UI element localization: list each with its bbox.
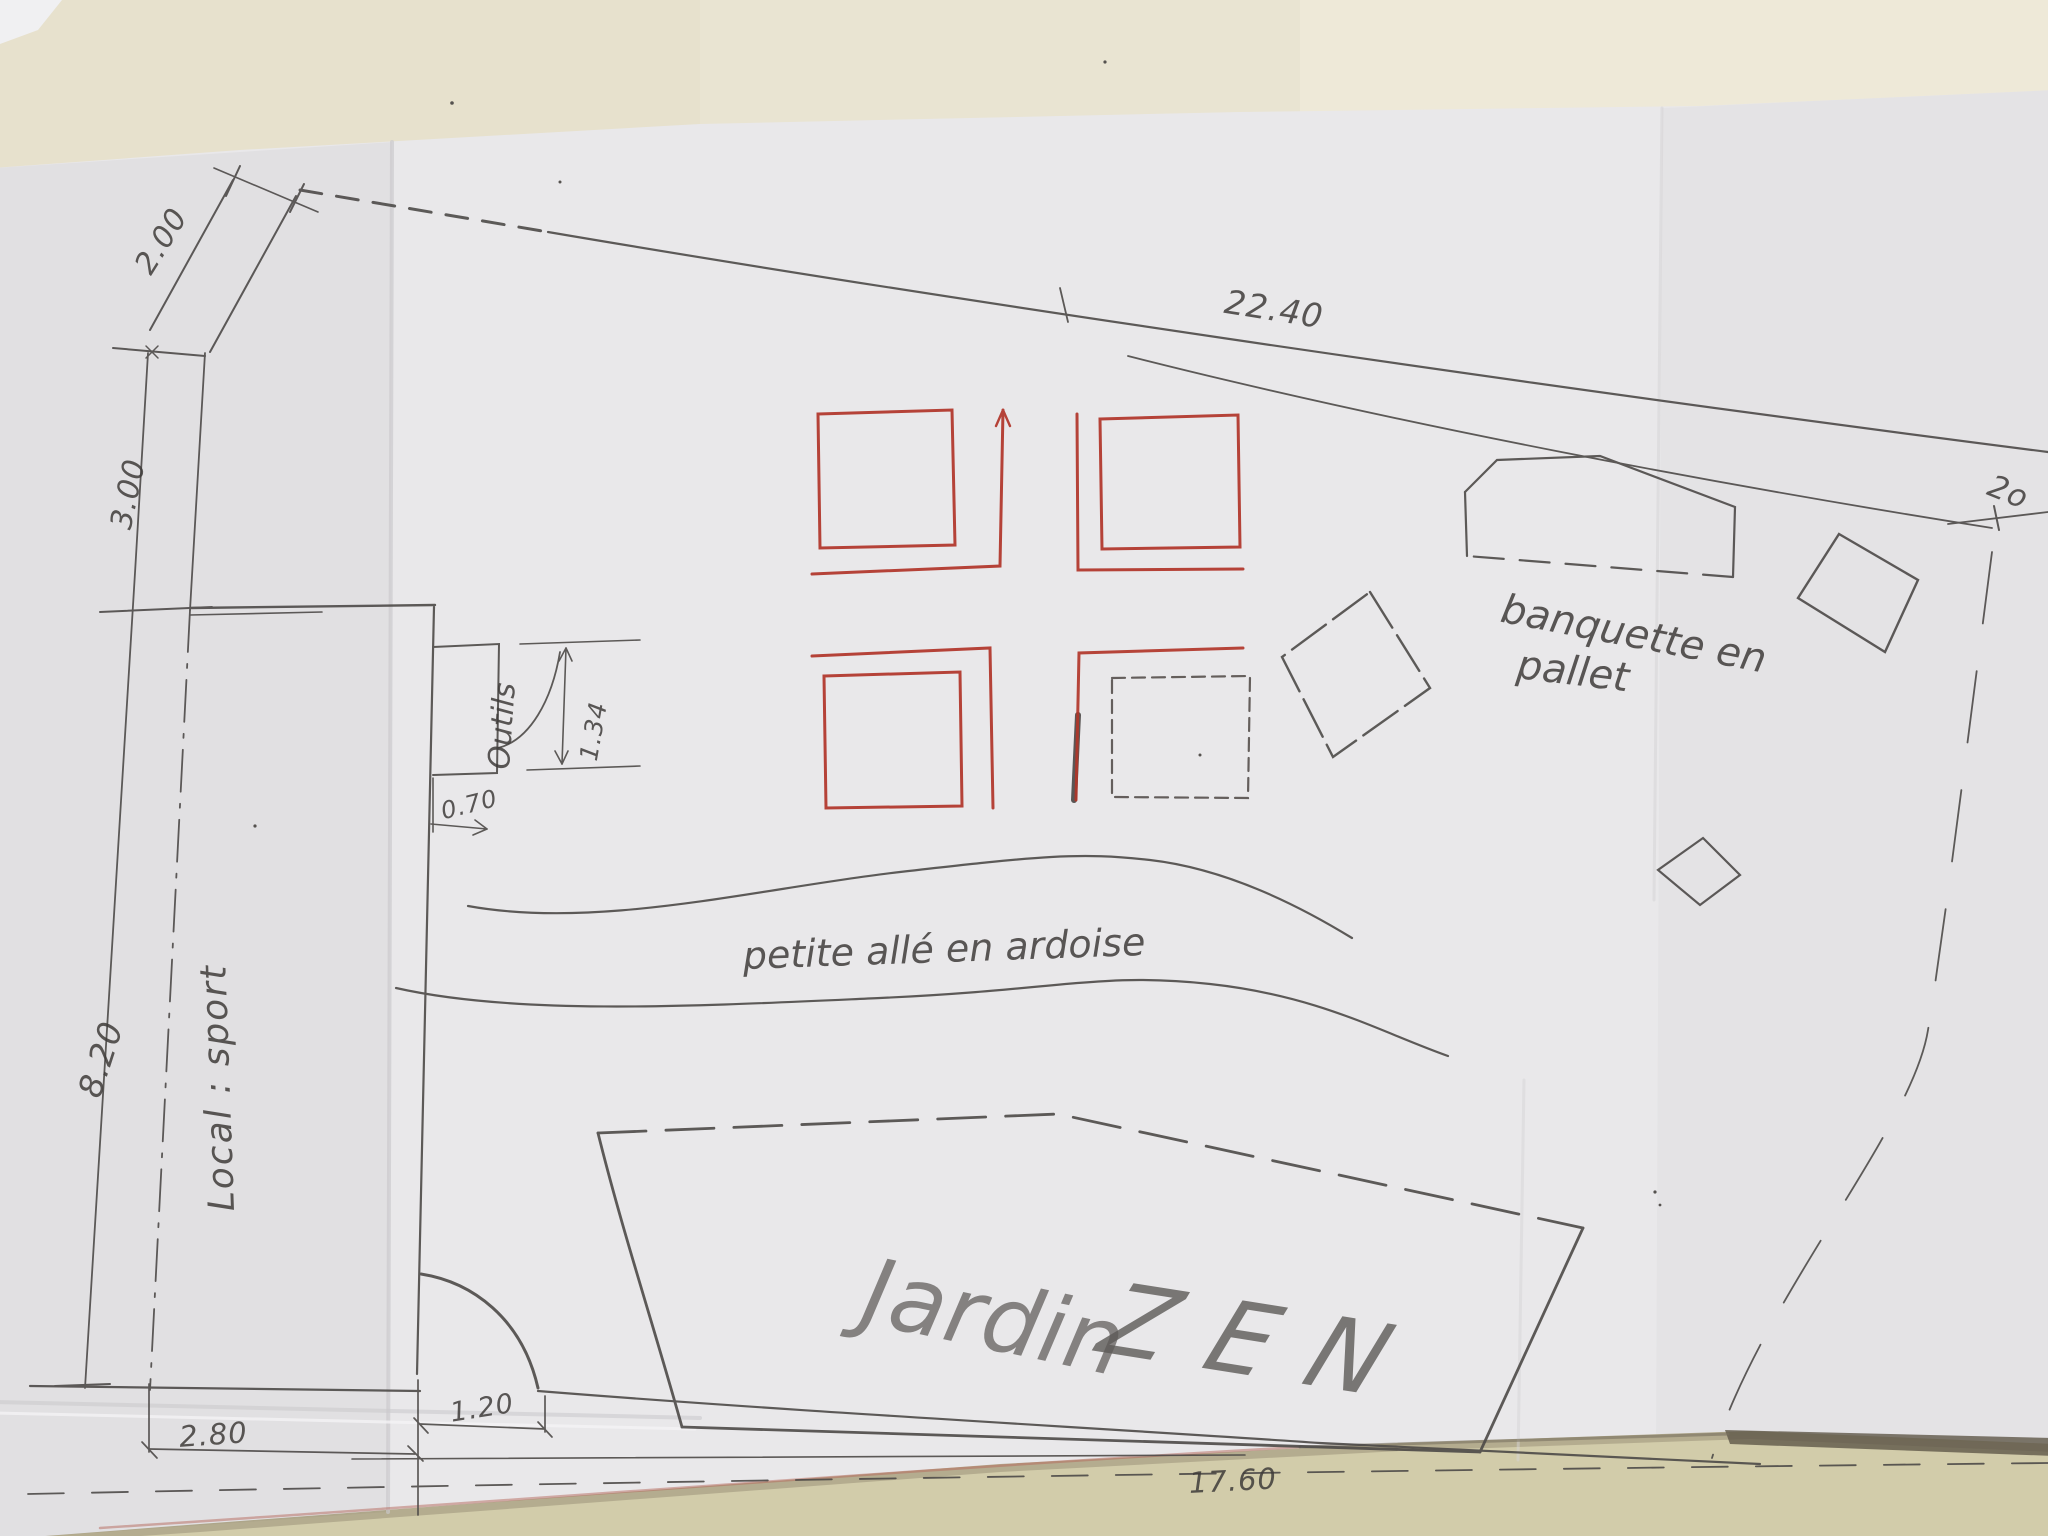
photo-of-hand-drawn-garden-plan: 2.00 3.00 8.20 22.40 2o Local : sport Ou… — [0, 0, 2048, 1536]
plan-drawing-svg — [0, 0, 2048, 1536]
paper-shade-left — [0, 142, 392, 1536]
paper-sheet — [0, 90, 2048, 1536]
paper-shade-right — [1656, 90, 2048, 1444]
